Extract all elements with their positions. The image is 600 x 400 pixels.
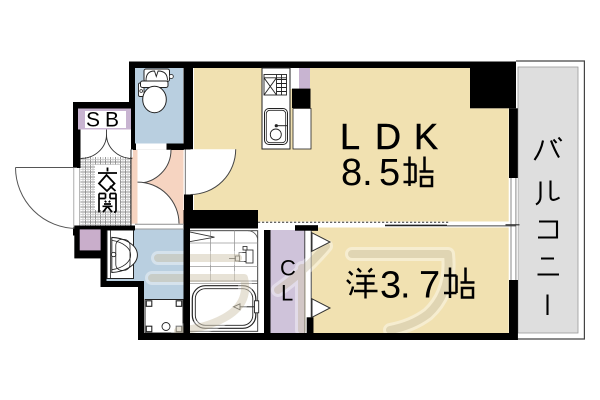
svg-text:SB: SB (86, 109, 124, 132)
svg-text:C: C (280, 255, 296, 280)
svg-text:5: 5 (379, 152, 400, 194)
svg-text:.: . (400, 265, 411, 307)
svg-text:7: 7 (419, 265, 440, 307)
svg-text:8.: 8. (341, 152, 373, 194)
svg-text:3: 3 (380, 265, 401, 307)
svg-text:K: K (414, 116, 438, 157)
svg-text:L: L (281, 281, 293, 306)
svg-text:D: D (375, 116, 401, 157)
svg-text:L: L (340, 116, 360, 157)
